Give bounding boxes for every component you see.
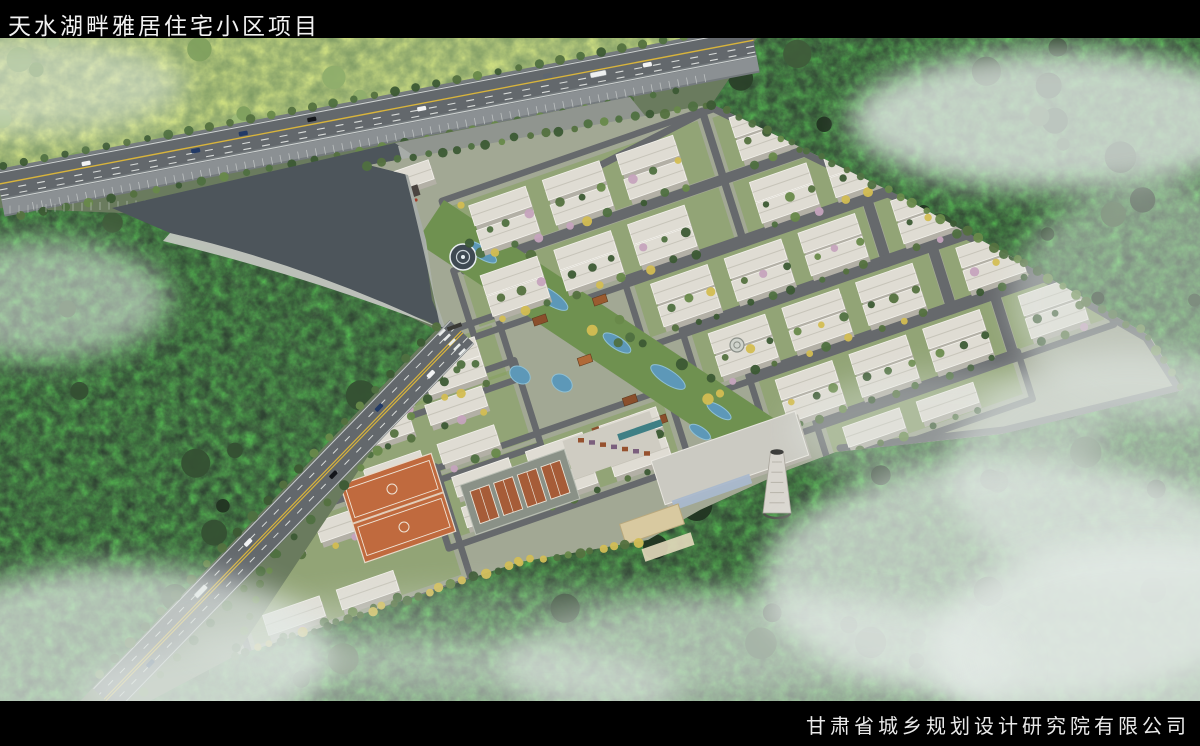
tree xyxy=(579,194,586,201)
tree xyxy=(596,281,604,289)
tree xyxy=(82,146,90,154)
tree xyxy=(856,238,864,246)
tree xyxy=(20,158,28,166)
tree xyxy=(707,374,716,383)
tree xyxy=(818,153,825,160)
tree xyxy=(885,185,893,193)
tree xyxy=(423,394,433,404)
tree xyxy=(696,319,702,325)
tree xyxy=(350,96,357,103)
tree xyxy=(973,233,983,243)
tree xyxy=(495,68,502,75)
tree xyxy=(505,561,514,570)
tree xyxy=(339,480,349,490)
tree xyxy=(540,556,547,563)
tree xyxy=(816,117,831,132)
tree xyxy=(759,270,767,278)
tree xyxy=(638,40,647,49)
chimney-top xyxy=(770,449,783,455)
tree xyxy=(729,378,736,385)
tree xyxy=(639,243,647,251)
tree xyxy=(357,464,364,471)
tree xyxy=(767,337,774,344)
courtyard-furniture xyxy=(644,451,650,456)
tree xyxy=(181,449,210,478)
tree xyxy=(992,259,999,266)
tree xyxy=(480,140,490,150)
tree xyxy=(106,194,116,204)
tree xyxy=(246,114,255,123)
tree xyxy=(821,342,831,352)
tree xyxy=(919,308,928,317)
tree xyxy=(266,568,272,574)
tree xyxy=(588,263,597,272)
tree xyxy=(469,571,479,581)
courtyard-furniture xyxy=(600,442,606,447)
tree xyxy=(937,236,944,243)
tree xyxy=(723,106,731,114)
tree xyxy=(587,325,598,336)
tree xyxy=(481,569,491,579)
tree xyxy=(491,448,501,458)
courtyard-furniture xyxy=(589,440,595,445)
tree xyxy=(61,151,68,158)
tree xyxy=(453,146,461,154)
tree xyxy=(644,469,650,475)
tree xyxy=(457,202,464,209)
tree xyxy=(525,209,535,219)
tree xyxy=(981,331,989,339)
tree xyxy=(526,555,534,563)
tree xyxy=(790,212,800,222)
tree xyxy=(401,354,410,363)
tree xyxy=(544,299,551,306)
tree xyxy=(483,380,490,387)
tree xyxy=(386,370,394,378)
tree xyxy=(487,226,494,233)
tree xyxy=(572,291,581,300)
tree xyxy=(219,172,228,181)
tree xyxy=(631,111,640,120)
tree xyxy=(763,125,772,134)
tree xyxy=(763,201,769,207)
tree xyxy=(441,394,448,401)
tree xyxy=(555,55,565,65)
tree xyxy=(227,443,243,459)
tree xyxy=(615,315,625,325)
tree xyxy=(510,133,519,142)
tree xyxy=(620,540,630,550)
tree xyxy=(243,169,250,176)
tree xyxy=(746,344,755,353)
tree xyxy=(452,75,461,84)
fountain-jet xyxy=(461,255,465,259)
tree xyxy=(641,200,648,207)
tree xyxy=(324,498,332,506)
tree xyxy=(499,316,506,323)
tree xyxy=(472,360,480,368)
tree xyxy=(625,475,632,482)
tree xyxy=(362,161,372,171)
tree xyxy=(332,542,339,549)
tree xyxy=(628,174,638,184)
tree xyxy=(103,143,111,151)
tree xyxy=(785,192,795,202)
tree xyxy=(608,255,615,262)
tree xyxy=(901,318,908,325)
tree xyxy=(857,173,865,181)
tree xyxy=(603,208,613,218)
tree xyxy=(584,119,593,128)
tree xyxy=(924,214,931,221)
tree xyxy=(123,139,130,146)
tree xyxy=(597,183,606,192)
courtyard-furniture xyxy=(622,447,628,452)
tree xyxy=(771,361,777,367)
tree xyxy=(803,148,810,155)
tree xyxy=(201,520,227,546)
tree xyxy=(480,409,487,416)
tree xyxy=(130,190,138,198)
tree xyxy=(356,402,364,410)
tree xyxy=(688,101,698,111)
project-title: 天水湖畔雅居住宅小区项目 xyxy=(8,7,320,41)
tree xyxy=(747,299,754,306)
tree xyxy=(373,446,383,456)
tree xyxy=(568,270,577,279)
tree xyxy=(322,66,345,89)
tree xyxy=(639,339,647,347)
tree xyxy=(497,294,505,302)
tree xyxy=(897,193,905,201)
tree xyxy=(907,219,913,225)
tree xyxy=(267,111,276,120)
tree xyxy=(385,443,391,449)
tree xyxy=(706,287,715,296)
tree xyxy=(465,239,474,248)
tree xyxy=(615,115,622,122)
tree xyxy=(924,207,931,214)
tree xyxy=(741,277,748,284)
tree xyxy=(390,429,399,438)
tree xyxy=(625,332,635,342)
tree xyxy=(675,157,682,164)
tree xyxy=(692,250,702,260)
tree xyxy=(676,358,688,370)
tree xyxy=(684,294,693,303)
tree xyxy=(226,119,234,127)
tree xyxy=(499,139,506,146)
tree xyxy=(294,464,303,473)
tree xyxy=(843,268,849,274)
tree xyxy=(783,262,791,270)
fog-patch xyxy=(180,585,1020,695)
tree xyxy=(491,248,499,256)
tree xyxy=(783,40,811,68)
tree xyxy=(390,86,400,96)
tree xyxy=(735,114,742,121)
tree xyxy=(769,291,778,300)
tree xyxy=(440,377,449,386)
tree xyxy=(960,341,968,349)
tree xyxy=(879,325,886,332)
tree xyxy=(706,100,716,110)
tree xyxy=(256,566,266,576)
tree xyxy=(451,465,458,472)
tree xyxy=(394,155,402,163)
tree xyxy=(39,207,48,216)
tree xyxy=(70,382,88,400)
tree xyxy=(596,47,606,57)
tree xyxy=(417,338,426,347)
tree xyxy=(247,511,258,522)
tree xyxy=(16,211,25,220)
tree xyxy=(279,481,287,489)
tree xyxy=(535,59,544,68)
tree xyxy=(842,195,851,204)
tree xyxy=(967,364,974,371)
tree xyxy=(233,528,242,537)
tree xyxy=(716,389,724,397)
tree xyxy=(839,312,848,321)
tree xyxy=(907,198,917,208)
tree xyxy=(963,226,973,236)
fog-patch xyxy=(790,370,1110,490)
tree xyxy=(187,38,211,61)
tree xyxy=(446,579,456,589)
tree xyxy=(839,174,846,181)
tree xyxy=(473,71,482,80)
tree xyxy=(308,102,317,111)
tree xyxy=(650,92,657,99)
tree xyxy=(471,454,480,463)
tree xyxy=(273,550,281,558)
tree xyxy=(744,137,752,145)
tree xyxy=(614,338,623,347)
tree xyxy=(912,285,920,293)
tree xyxy=(521,306,531,316)
tree xyxy=(649,167,657,175)
courtyard-furniture xyxy=(611,445,617,450)
tree xyxy=(441,422,448,429)
tree xyxy=(144,135,151,142)
tree xyxy=(789,139,796,146)
tree xyxy=(197,177,206,186)
tree xyxy=(786,285,795,294)
tree xyxy=(778,136,785,143)
tree xyxy=(554,127,564,137)
tree xyxy=(750,365,760,375)
tree xyxy=(163,130,173,140)
tree xyxy=(288,107,296,115)
tree xyxy=(844,167,851,174)
tree xyxy=(667,304,675,312)
tree xyxy=(216,499,230,513)
tree xyxy=(936,349,945,358)
tree xyxy=(458,576,466,584)
tree xyxy=(722,354,729,361)
tree xyxy=(831,245,838,252)
tree xyxy=(541,128,550,137)
tree xyxy=(495,568,502,575)
tree xyxy=(553,554,560,561)
tree xyxy=(371,386,379,394)
tree xyxy=(432,79,440,87)
poster-canvas: 天水湖畔雅居住宅小区项目 甘肃省 xyxy=(0,0,1200,746)
tree xyxy=(646,265,655,274)
tree xyxy=(291,533,298,540)
tree xyxy=(153,186,160,193)
tree xyxy=(884,367,892,375)
tree xyxy=(702,393,713,404)
tree xyxy=(203,560,210,567)
tree xyxy=(808,185,815,192)
tree xyxy=(600,117,609,126)
tree xyxy=(407,412,415,420)
tree xyxy=(594,487,601,494)
tree xyxy=(341,418,348,425)
tree xyxy=(432,322,441,331)
tree xyxy=(682,184,690,192)
tree xyxy=(176,182,182,188)
tree xyxy=(457,360,466,369)
tree xyxy=(582,216,592,226)
tree xyxy=(407,434,416,443)
tree xyxy=(867,180,876,189)
tree xyxy=(750,161,759,170)
top-title-bar: 天水湖畔雅居住宅小区项目 xyxy=(0,0,1200,38)
tree xyxy=(714,314,720,320)
design-institute-name: 甘肃省城乡规划设计研究院有限公司 xyxy=(806,710,1190,739)
tree xyxy=(502,219,510,227)
tree xyxy=(818,322,825,329)
tree xyxy=(527,132,534,139)
tree xyxy=(999,249,1009,259)
tree xyxy=(976,288,984,296)
tree xyxy=(514,557,522,565)
tree xyxy=(425,150,432,157)
tree xyxy=(576,548,586,558)
tree xyxy=(868,301,875,308)
tree xyxy=(40,154,48,162)
tree xyxy=(913,243,921,251)
tree xyxy=(634,538,644,548)
tree xyxy=(772,221,778,227)
courtyard-furniture xyxy=(633,449,639,454)
tree xyxy=(794,327,802,335)
tree xyxy=(515,64,522,71)
tree xyxy=(256,580,264,588)
tree xyxy=(411,83,420,92)
tree xyxy=(989,243,999,253)
circular-plaza xyxy=(730,338,744,352)
tree xyxy=(566,222,574,230)
tree xyxy=(184,126,193,135)
tree xyxy=(935,214,945,224)
tree xyxy=(325,433,333,441)
tree xyxy=(310,449,319,458)
tree xyxy=(517,286,527,296)
tree xyxy=(859,260,868,269)
tree xyxy=(660,109,670,119)
tree xyxy=(617,43,627,53)
tree xyxy=(661,236,667,242)
tree xyxy=(681,228,691,238)
tree xyxy=(537,277,546,286)
tree xyxy=(371,92,378,99)
tree xyxy=(669,255,677,263)
tree xyxy=(468,143,475,150)
tree xyxy=(102,212,122,232)
tree xyxy=(565,551,572,558)
bottom-credit-bar: 甘肃省城乡规划设计研究院有限公司 xyxy=(0,701,1200,746)
tree xyxy=(586,548,593,555)
tree xyxy=(84,198,93,207)
tree xyxy=(889,293,899,303)
tree xyxy=(815,207,824,216)
tree xyxy=(438,148,448,158)
tree xyxy=(748,120,756,128)
tree xyxy=(674,106,681,113)
tree xyxy=(534,234,543,243)
tree xyxy=(828,160,835,167)
tree xyxy=(457,415,466,424)
tree xyxy=(600,545,608,553)
tree xyxy=(377,158,386,167)
tree xyxy=(410,154,417,161)
tree xyxy=(263,496,272,505)
tree xyxy=(672,324,679,331)
tree xyxy=(970,267,979,276)
tree xyxy=(306,515,316,525)
tree xyxy=(217,543,227,553)
tree xyxy=(769,152,778,161)
tree xyxy=(788,399,795,406)
tree xyxy=(571,126,578,133)
tree xyxy=(511,241,518,248)
tree xyxy=(814,253,821,260)
tree xyxy=(266,165,273,172)
tree xyxy=(555,197,565,207)
site-aerial-rendering xyxy=(0,38,1200,701)
tree xyxy=(989,355,995,361)
tree xyxy=(844,333,852,341)
tree xyxy=(672,87,679,94)
tree xyxy=(205,122,214,131)
tree xyxy=(660,188,669,197)
tree xyxy=(819,277,825,283)
tree xyxy=(328,98,337,107)
tree xyxy=(806,350,813,357)
tree xyxy=(62,203,70,211)
tree xyxy=(576,52,585,61)
tree xyxy=(610,542,618,550)
tree xyxy=(908,360,915,367)
tree xyxy=(616,273,625,282)
courtyard-furniture xyxy=(578,438,584,443)
tree xyxy=(950,220,957,227)
tree xyxy=(456,389,465,398)
tree xyxy=(998,283,1007,292)
tree xyxy=(646,110,655,119)
tree xyxy=(952,229,962,239)
